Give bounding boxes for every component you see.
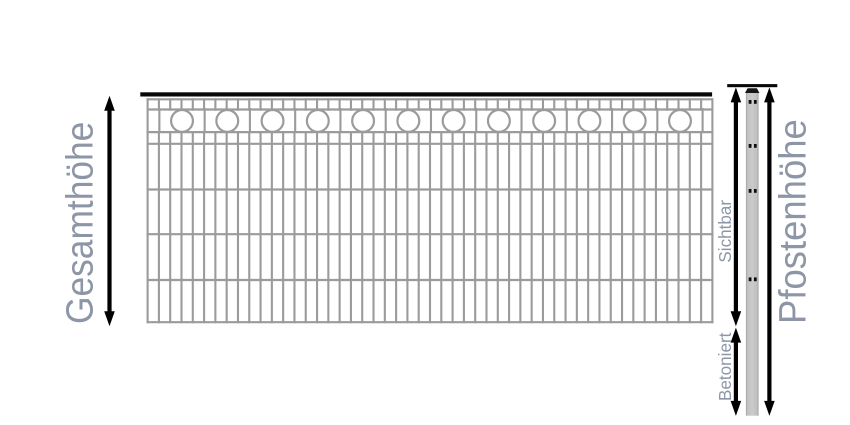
svg-text:Pfostenhöhe: Pfostenhöhe xyxy=(771,119,814,324)
svg-text:Gesamthöhe: Gesamthöhe xyxy=(58,122,100,324)
svg-text:Sichtbar: Sichtbar xyxy=(714,200,735,263)
svg-text:Betoniert: Betoniert xyxy=(714,332,735,401)
